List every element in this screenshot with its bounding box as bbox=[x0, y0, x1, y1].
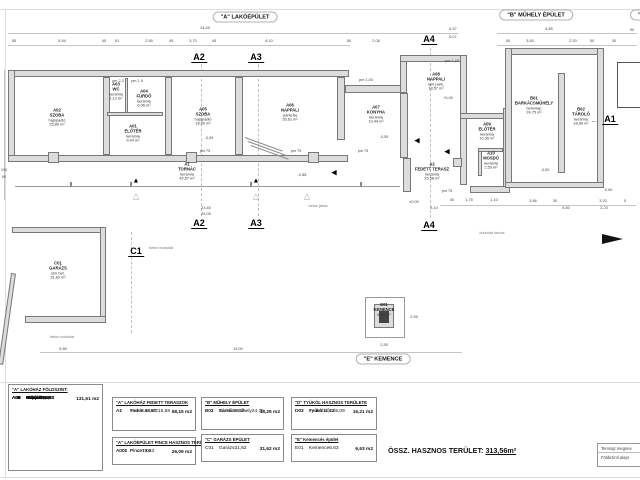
dimension-label: 15,00 bbox=[233, 347, 243, 351]
row-code: A002 bbox=[116, 449, 130, 455]
title-block-line2: Földszinti alapr bbox=[598, 453, 640, 460]
row-code: E01 bbox=[295, 446, 309, 452]
plan-symbol-glyph: △ bbox=[304, 192, 310, 201]
room-label: E01 KEMENCE 6,63 m² bbox=[374, 303, 395, 317]
room-area: 13,44 m² bbox=[367, 120, 385, 125]
dimension-value: 5,85 bbox=[545, 27, 552, 31]
building-title: "D" TYÚKÓL bbox=[630, 10, 640, 21]
wall bbox=[478, 148, 482, 176]
dimension-label: pm 1,49 bbox=[445, 59, 459, 63]
room-label: A06 NAPPALI parketta 26,61 m² bbox=[281, 103, 299, 122]
dimension-value: 6,10 bbox=[265, 39, 272, 43]
dimension-value: pm 2,2 bbox=[112, 79, 124, 83]
building-title: "A" LAKÓÉPÜLET bbox=[213, 12, 278, 23]
dimension-value: 30 bbox=[553, 199, 557, 203]
plan-symbol-glyph: ▲ bbox=[133, 178, 140, 185]
building-d-outline bbox=[617, 62, 640, 108]
dimension-value: 100 bbox=[1, 168, 7, 172]
row-value: 31,62 bbox=[234, 446, 246, 452]
surface-note: beton járda bbox=[309, 204, 328, 208]
room-label: A09 ELŐTÉR kerámia 10,35 m² bbox=[479, 122, 496, 141]
dimension-value: 5,54 bbox=[58, 39, 65, 43]
room-area: 31,62 m² bbox=[49, 276, 67, 281]
wall bbox=[12, 227, 104, 233]
dimension-value: 3,86 bbox=[529, 199, 536, 203]
row-value: 15,58 bbox=[158, 409, 170, 415]
dimension-value: 50 bbox=[590, 39, 594, 43]
dimension-label: pm 75 bbox=[442, 189, 453, 193]
room-label: B01 BARKÁCSMŰHELY betonlap 24,75 m² bbox=[515, 96, 553, 115]
wall bbox=[107, 112, 163, 116]
wall bbox=[558, 73, 565, 173]
table-row: A2Fedett terasz15,58 bbox=[116, 409, 170, 415]
room-label: A05 SZOBA hajópadló 18,00 m² bbox=[195, 107, 212, 126]
room-area: 9,04 m² bbox=[125, 139, 142, 144]
dimension-label: 50 bbox=[347, 39, 351, 43]
dimension-value: +0,00 bbox=[443, 96, 453, 100]
dimension-label: 3,86 bbox=[529, 199, 536, 203]
room-area: 6,63 m² bbox=[374, 312, 395, 317]
dimension-label: 30 bbox=[450, 198, 454, 202]
room-label: A10 MOSDÓ kerámia 2,53 m² bbox=[483, 151, 499, 170]
dimension-value: 2,20 bbox=[569, 39, 576, 43]
dimension-label: 6,57 bbox=[449, 27, 456, 31]
grand-total-label: ÖSSZ. HASZNOS TERÜLET: bbox=[388, 446, 483, 455]
dimension-value: 6,57 bbox=[449, 27, 456, 31]
section-marker-label: A4 bbox=[423, 34, 435, 44]
porch-edge bbox=[15, 186, 400, 187]
dimension-label: 5 bbox=[624, 199, 626, 203]
section-marker-label: A1 bbox=[604, 114, 616, 124]
plan-symbol-icon: △ bbox=[253, 193, 259, 200]
section-marker-label: A3 bbox=[250, 218, 262, 228]
plan-symbol-icon: △ bbox=[133, 193, 139, 200]
plan-symbol-glyph: ◀ bbox=[331, 170, 336, 177]
wall bbox=[8, 70, 349, 77]
dimension-value: 2,08 bbox=[372, 39, 379, 43]
dimension-label: 90 bbox=[2, 175, 6, 179]
row-name: Fedett terasz bbox=[130, 409, 158, 415]
dimension-value: pm 75 bbox=[200, 149, 211, 153]
dimension-value: 91 bbox=[115, 39, 119, 43]
dimension-label: 45 bbox=[212, 39, 216, 43]
surface-note-text: beton burkolat bbox=[149, 246, 173, 250]
building-title: "B" MŰHELY ÉPÜLET bbox=[499, 10, 573, 21]
dimension-value: 3,50 bbox=[526, 39, 533, 43]
row-code: B02 bbox=[205, 409, 219, 415]
surface-note: beton burkolat bbox=[50, 335, 74, 339]
dimension-label: -0,88 bbox=[298, 173, 307, 177]
dimension-value: -0,88 bbox=[298, 173, 307, 177]
dimension-label: 2,23 bbox=[600, 206, 607, 210]
stair-hatch bbox=[248, 141, 286, 156]
dimension-value: 3,70 bbox=[189, 39, 196, 43]
dim-line bbox=[8, 45, 350, 46]
dimension-value: pm 75 bbox=[358, 149, 369, 153]
plan-symbol-icon: ◀ bbox=[414, 138, 419, 145]
room-area: 42,57 m² bbox=[178, 177, 196, 182]
dimension-value: 2,55 bbox=[380, 343, 387, 347]
dimension-label: 1,10 bbox=[490, 198, 497, 202]
dimension-label: 6,10 bbox=[265, 39, 272, 43]
dimension-label: pm 75 bbox=[291, 149, 302, 153]
dimension-label: -0,59 bbox=[205, 136, 214, 140]
porch-column bbox=[308, 152, 319, 163]
section-marker: A2 bbox=[191, 52, 207, 63]
dimension-label: 2,55 bbox=[410, 315, 417, 319]
title-block: Tervrajz megnev Földszinti alapr bbox=[597, 443, 640, 467]
dimension-value: 6,60 bbox=[562, 206, 569, 210]
room-area: 26,61 m² bbox=[281, 118, 299, 123]
dimension-value: 5 bbox=[624, 199, 626, 203]
dimension-label: 50 bbox=[506, 39, 510, 43]
table-kemence: "E" Kemencés épület E01Kemence6,63 6,63 … bbox=[291, 434, 377, 462]
table-header: "E" Kemencés épület bbox=[295, 437, 373, 442]
wall bbox=[165, 77, 172, 155]
section-marker: C1 bbox=[128, 246, 144, 257]
dimension-label: 6,07 bbox=[449, 35, 456, 39]
porch-post bbox=[70, 182, 72, 187]
dimension-value: -0,50 bbox=[604, 188, 613, 192]
plan-symbol-glyph: ◀ bbox=[444, 149, 449, 156]
room-area: 25,89 m² bbox=[49, 123, 66, 128]
surface-note-text: beton járda bbox=[309, 204, 328, 208]
dimension-label: 3,10 bbox=[430, 206, 437, 210]
dimension-label: 100 bbox=[1, 168, 7, 172]
dimension-label: 30 bbox=[612, 39, 616, 43]
dimension-label: 90 bbox=[630, 28, 634, 32]
dimension-label: 6,60 bbox=[562, 206, 569, 210]
row-code: D02 bbox=[295, 409, 309, 415]
dimension-label: 55 bbox=[12, 39, 16, 43]
room-label: A02 SZOBA hajópadló 25,89 m² bbox=[49, 108, 66, 127]
building-title-label: "A" LAKÓÉPÜLET bbox=[221, 14, 270, 20]
wall bbox=[453, 158, 462, 167]
wall bbox=[8, 70, 15, 162]
dimension-label: 1,75 bbox=[465, 198, 472, 202]
wall bbox=[505, 48, 512, 188]
dimension-value: 90 bbox=[2, 175, 6, 179]
plan-symbol-icon: ▲ bbox=[133, 178, 140, 185]
room-area: 10,35 m² bbox=[479, 137, 496, 142]
table-row: C01Garázs31,62 bbox=[205, 446, 246, 452]
dimension-label: -0,50 bbox=[541, 168, 550, 172]
surface-note: burkolat kavics bbox=[479, 231, 504, 235]
dimension-label: 24,05 bbox=[201, 212, 211, 216]
dimension-value: 45 bbox=[212, 39, 216, 43]
dimension-label: 5,85 bbox=[545, 27, 552, 31]
wall bbox=[125, 78, 128, 113]
room-label: A03 WC kerámia 1,12 m² bbox=[109, 82, 123, 101]
table-header: "A" LAKÓÉPÜLET PINCE HASZNOS TERÜLETE: bbox=[116, 440, 192, 445]
room-label: C01 GARÁZS sim.bet. 31,62 m² bbox=[49, 261, 67, 280]
room-area: 24,75 m² bbox=[515, 111, 553, 116]
row-code: C01 bbox=[205, 446, 219, 452]
north-arrow-icon bbox=[602, 234, 623, 244]
building-title-label: "B" MŰHELY ÉPÜLET bbox=[507, 12, 565, 18]
section-marker: A1 bbox=[602, 114, 618, 125]
dimension-value: 45 bbox=[169, 39, 173, 43]
section-marker: A3 bbox=[248, 52, 264, 63]
dimension-value: 50 bbox=[347, 39, 351, 43]
dimension-label: pm 2,2 bbox=[112, 79, 124, 83]
table-header: "C" GARÁZS ÉPÜLET bbox=[205, 437, 280, 442]
dim-line bbox=[4, 70, 5, 200]
dimension-value: pm 75 bbox=[291, 149, 302, 153]
dimension-value: 90 bbox=[630, 28, 634, 32]
surface-note: beton burkolat bbox=[149, 246, 173, 250]
dimension-label: pm 1,00 bbox=[359, 78, 373, 82]
dimension-label: pm 1,9 bbox=[131, 79, 143, 83]
section-marker-label: A3 bbox=[250, 52, 262, 62]
dimension-value: 15,00 bbox=[233, 347, 243, 351]
dimension-value: 50 bbox=[506, 39, 510, 43]
wall bbox=[400, 93, 408, 158]
dimension-label: 3,20 bbox=[599, 199, 606, 203]
plan-symbol-glyph: ▲ bbox=[253, 178, 260, 185]
floor-plan-sheet: { "sheet": { "building_titles": [ {"labe… bbox=[0, 0, 640, 480]
dimension-label: -0,55 bbox=[380, 135, 389, 139]
wall bbox=[470, 186, 510, 193]
section-marker-label: A2 bbox=[193, 218, 205, 228]
wall bbox=[337, 77, 345, 140]
plan-symbol-icon: ▲ bbox=[253, 178, 260, 185]
section-marker-label: A2 bbox=[193, 52, 205, 62]
table-header: "A" LAKÓHÁZ FEDETT TERASZOK bbox=[116, 400, 192, 405]
table-tyukol: "D" TYÚKÓL HASZNOS TERÜLETE D01Fedett ki… bbox=[291, 397, 377, 430]
porch-post bbox=[360, 182, 362, 187]
building-title-label: "E" KEMENCE bbox=[364, 356, 403, 362]
row-name: Garázs bbox=[219, 446, 234, 452]
row-name: Tyúkól bbox=[309, 409, 323, 415]
plan-symbol-icon: ◀ bbox=[444, 149, 449, 156]
dimension-value: 1,75 bbox=[465, 198, 472, 202]
room-label: A04 FÜRDŐ kerámia 6,06 m² bbox=[137, 89, 152, 108]
dimension-label: 24,45 bbox=[200, 26, 210, 30]
room-label: A1 TORNÁC kerámia 42,57 m² bbox=[178, 162, 196, 181]
dimension-value: pm 1,9 bbox=[131, 79, 143, 83]
grand-total-value: 313,56m² bbox=[485, 446, 516, 455]
table-header: "A" LAKÓHÁZ FÖLDSZINT: bbox=[12, 387, 99, 392]
dimension-value: 55 bbox=[12, 39, 16, 43]
dimension-value: -0,50 bbox=[541, 168, 550, 172]
dimension-label: 5,85 bbox=[59, 347, 66, 351]
room-area: 18,57 m² bbox=[427, 87, 445, 92]
section-marker: A3 bbox=[248, 218, 264, 229]
table-muhely: "B" MŰHELY ÉPÜLET B01Barkácsműhely24,75B… bbox=[201, 397, 284, 430]
room-area: 18,00 m² bbox=[195, 122, 212, 127]
dimension-label: 2,20 bbox=[569, 39, 576, 43]
wall bbox=[345, 85, 403, 93]
dimension-value: pm 1,00 bbox=[359, 78, 373, 82]
table-garazs: "C" GARÁZS ÉPÜLET C01Garázs31,62 31,62 m… bbox=[201, 434, 284, 462]
plan-symbol-glyph: △ bbox=[253, 192, 259, 201]
row-value: 11,12 bbox=[323, 409, 335, 415]
dimension-label: 91 bbox=[115, 39, 119, 43]
dimension-label: 2,08 bbox=[372, 39, 379, 43]
wall bbox=[403, 158, 411, 192]
row-value: 6,63 bbox=[329, 446, 338, 452]
dimension-label: pm 75 bbox=[358, 149, 369, 153]
dimension-value: pm 75 bbox=[442, 189, 453, 193]
room-label: B02 TÁROLÓ kerámia 18,50 m² bbox=[572, 107, 590, 126]
section-marker: A4 bbox=[421, 220, 437, 231]
table-teraszok: "A" LAKÓHÁZ FEDETT TERASZOK A1Tornác42,5… bbox=[112, 397, 196, 431]
surface-note-text: burkolat kavics bbox=[479, 231, 504, 235]
dimension-label: pm 75 bbox=[200, 149, 211, 153]
room-area: 2,53 m² bbox=[483, 166, 499, 171]
row-code: A10 bbox=[12, 396, 26, 402]
sheet-frame-bottom bbox=[0, 477, 640, 478]
room-area: 15,58 m² bbox=[415, 177, 449, 182]
dimension-value: 5,85 bbox=[59, 347, 66, 351]
sheet-frame-left bbox=[5, 9, 6, 477]
dimension-value: 1,10 bbox=[490, 198, 497, 202]
dimension-label: 2,55 bbox=[145, 39, 152, 43]
dimension-label: 2,55 bbox=[380, 343, 387, 347]
section-marker: A4 bbox=[421, 34, 437, 45]
dimension-label: 3,50 bbox=[526, 39, 533, 43]
dimension-value: 30 bbox=[450, 198, 454, 202]
row-name: Kemence bbox=[309, 446, 329, 452]
plan-table-separator bbox=[0, 382, 640, 383]
section-marker: A2 bbox=[191, 218, 207, 229]
row-code: A2 bbox=[116, 409, 130, 415]
dimension-label: ±0,00 bbox=[409, 200, 418, 204]
grand-total: ÖSSZ. HASZNOS TERÜLET: 313,56m² bbox=[388, 446, 516, 455]
table-header: "B" MŰHELY ÉPÜLET bbox=[205, 400, 280, 405]
section-line-a2 bbox=[201, 64, 202, 216]
title-block-line1: Tervrajz megnev bbox=[598, 444, 640, 453]
wall bbox=[235, 77, 243, 155]
dimension-label: 50 bbox=[590, 39, 594, 43]
dimension-label: 45 bbox=[102, 39, 106, 43]
dimension-label: 30 bbox=[553, 199, 557, 203]
retaining-wall bbox=[0, 273, 16, 365]
plan-symbol-icon: △ bbox=[304, 193, 310, 200]
dimension-label: -0,50 bbox=[604, 188, 613, 192]
dimension-value: pm 1,49 bbox=[445, 59, 459, 63]
dimension-value: 3,20 bbox=[599, 199, 606, 203]
room-label: A01 ELŐTÉR kerámia 9,04 m² bbox=[125, 124, 142, 143]
dimension-label: 3,70 bbox=[189, 39, 196, 43]
table-row: D02Tyúkól11,12 bbox=[295, 409, 335, 415]
table-header: "D" TYÚKÓL HASZNOS TERÜLETE bbox=[295, 400, 373, 405]
plan-symbol-icon: ◀ bbox=[331, 170, 336, 177]
section-marker-label: A4 bbox=[423, 220, 435, 230]
dimension-value: -0,55 bbox=[380, 135, 389, 139]
dimension-label: +0,00 bbox=[443, 96, 453, 100]
dimension-value: 30 bbox=[612, 39, 616, 43]
section-marker-label: C1 bbox=[130, 246, 142, 256]
dimension-value: 2,23 bbox=[600, 206, 607, 210]
room-label: A08 NAPPALI lam.park. 18,57 m² bbox=[427, 72, 445, 91]
dimension-value: 45 bbox=[102, 39, 106, 43]
row-value: 18,50 bbox=[233, 409, 245, 415]
wall bbox=[8, 155, 348, 162]
dimension-value: 3,10 bbox=[430, 206, 437, 210]
dim-line bbox=[8, 33, 458, 34]
room-area: 1,12 m² bbox=[109, 97, 123, 102]
row-name: Tároló bbox=[219, 409, 233, 415]
dimension-value: 24,05 bbox=[201, 212, 211, 216]
dimension-value: 2,55 bbox=[145, 39, 152, 43]
dim-line bbox=[497, 45, 637, 46]
row-value: 7,06 bbox=[142, 449, 151, 455]
table-pince: "A" LAKÓÉPÜLET PINCE HASZNOS TERÜLETE: A… bbox=[112, 437, 196, 465]
row-value: 5,09 bbox=[335, 409, 344, 415]
dimension-label: 5,54 bbox=[58, 39, 65, 43]
room-area: 6,06 m² bbox=[137, 104, 152, 109]
dimension-value: 23,45 bbox=[201, 206, 211, 210]
dim-line bbox=[497, 33, 637, 34]
table-row: A10Mosdó2,53 bbox=[12, 396, 50, 402]
dimension-value: ±0,00 bbox=[409, 200, 418, 204]
surface-note-text: beton burkolat bbox=[50, 335, 74, 339]
building-title: "E" KEMENCE bbox=[356, 354, 411, 365]
plan-symbol-glyph: ◀ bbox=[414, 138, 419, 145]
row-value: 2,53 bbox=[40, 396, 49, 402]
room-area: 18,50 m² bbox=[572, 122, 590, 127]
room-label: A2 FEDETT TERASZ kerámia 15,58 m² bbox=[415, 162, 449, 181]
table-row: B02Tároló18,50 bbox=[205, 409, 245, 415]
wall bbox=[505, 182, 604, 188]
row-value: 24,75 bbox=[252, 409, 264, 415]
wall bbox=[100, 227, 106, 322]
table-row: A002Pince7,06 bbox=[116, 449, 151, 455]
room-label: A07 KONYHA kerámia 13,44 m² bbox=[367, 105, 385, 124]
table-foldszint: "A" LAKÓHÁZ FÖLDSZINT: A01Előtér9,04A02S… bbox=[8, 384, 103, 471]
dimension-value: 6,07 bbox=[449, 35, 456, 39]
dimension-label: 45 bbox=[169, 39, 173, 43]
wall bbox=[25, 316, 106, 323]
dimension-value: 2,55 bbox=[410, 315, 417, 319]
table-row: E01Kemence6,63 bbox=[295, 446, 339, 452]
dimension-value: -0,59 bbox=[205, 136, 214, 140]
porch-column bbox=[48, 152, 59, 163]
dimension-label: 23,45 bbox=[201, 206, 211, 210]
dimension-value: 24,45 bbox=[200, 26, 210, 30]
plan-symbol-glyph: △ bbox=[133, 192, 139, 201]
row-name: Mosdó bbox=[26, 396, 40, 402]
row-name: Pince bbox=[130, 449, 142, 455]
wall bbox=[505, 48, 604, 55]
